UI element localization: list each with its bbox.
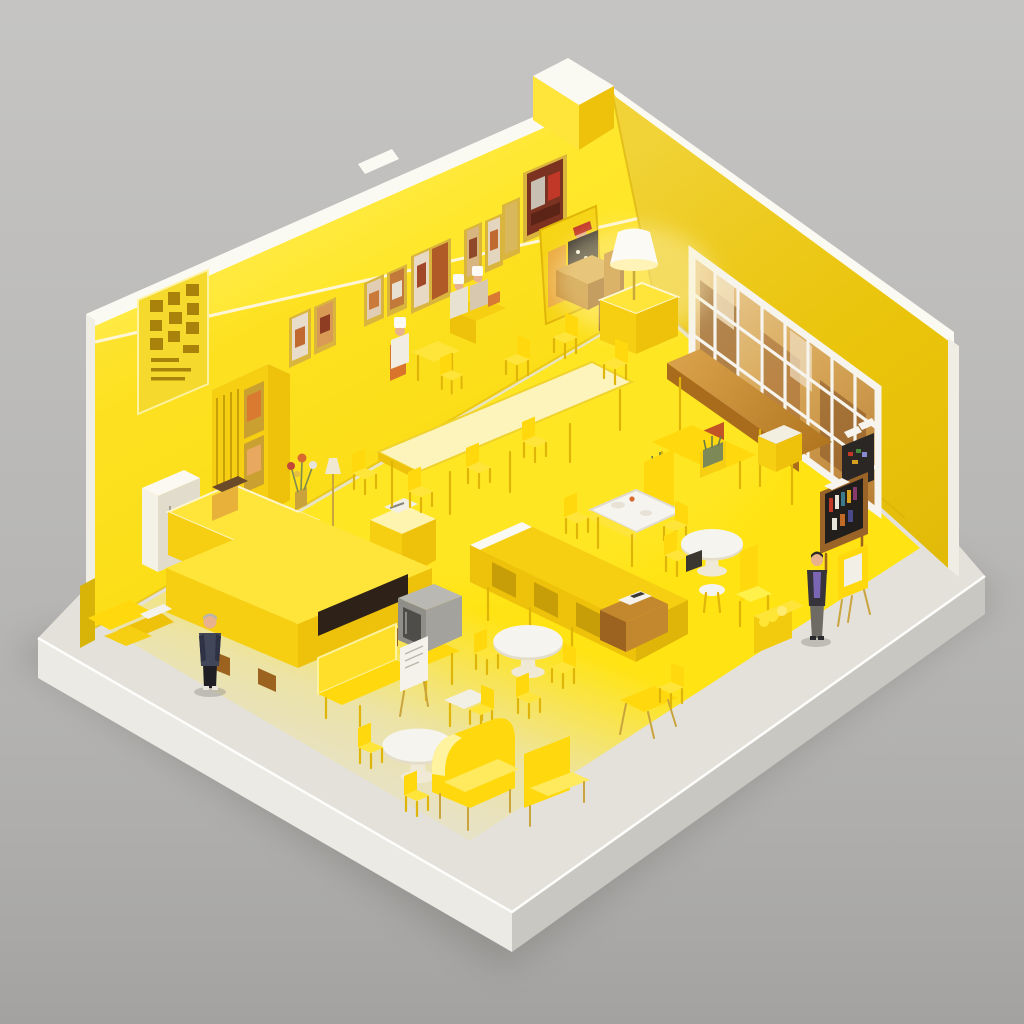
picture-frame [314, 297, 336, 355]
left-wall-outer-sliver [80, 578, 95, 648]
dish [611, 502, 625, 509]
gold-mirror-frame [502, 197, 520, 261]
round-stool [699, 584, 725, 596]
lamp-underglow [610, 259, 658, 271]
scene-canvas [0, 0, 1024, 1024]
cup [629, 496, 634, 501]
picture-frame [364, 274, 384, 327]
picture-frame [289, 308, 311, 368]
picture-frame [485, 213, 503, 273]
dish [640, 510, 652, 516]
picture-frame [387, 264, 407, 317]
right-wall-end-trim [948, 338, 959, 577]
isometric-cafe-diorama [0, 0, 1024, 1024]
